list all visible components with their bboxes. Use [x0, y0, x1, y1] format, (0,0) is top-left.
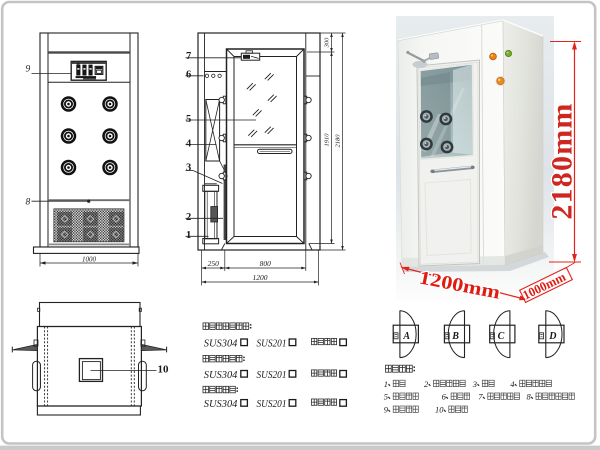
svg-text:800: 800 — [260, 259, 272, 268]
svg-text:SUS201: SUS201 — [257, 399, 287, 410]
svg-text:SUS304: SUS304 — [204, 370, 238, 381]
svg-text:SUS201: SUS201 — [257, 370, 287, 381]
svg-text:2180: 2180 — [335, 134, 342, 148]
svg-text:D: D — [548, 331, 556, 342]
svg-text:1: 1 — [384, 379, 388, 389]
svg-text:2180mm: 2180mm — [546, 102, 579, 219]
svg-text:5: 5 — [186, 114, 191, 125]
svg-text:1200: 1200 — [253, 273, 268, 282]
svg-text:300: 300 — [324, 37, 331, 49]
svg-text:3: 3 — [186, 163, 191, 174]
svg-text:SUS201: SUS201 — [257, 338, 287, 349]
svg-text:SUS304: SUS304 — [204, 399, 238, 410]
svg-text:2: 2 — [186, 212, 191, 223]
svg-text:10: 10 — [158, 364, 170, 376]
svg-text:B: B — [451, 331, 459, 342]
svg-text:10: 10 — [435, 405, 444, 415]
svg-text:1000: 1000 — [82, 256, 97, 264]
svg-text:9: 9 — [26, 65, 31, 75]
svg-text:SUS304: SUS304 — [204, 338, 238, 349]
svg-text:4: 4 — [186, 139, 192, 150]
svg-text:5: 5 — [384, 392, 388, 402]
svg-text:6: 6 — [186, 70, 191, 81]
svg-text:3: 3 — [472, 379, 477, 389]
svg-text:A: A — [402, 331, 410, 342]
svg-text:7: 7 — [186, 51, 191, 62]
svg-text:1: 1 — [186, 230, 191, 241]
svg-text:9: 9 — [384, 405, 389, 415]
svg-text:6: 6 — [442, 392, 447, 402]
svg-text:250: 250 — [208, 259, 220, 268]
svg-text:8: 8 — [26, 198, 31, 208]
svg-text:7: 7 — [478, 392, 483, 402]
svg-text:4: 4 — [510, 379, 515, 389]
svg-text:C: C — [498, 331, 505, 342]
svg-text:1910: 1910 — [324, 133, 331, 147]
